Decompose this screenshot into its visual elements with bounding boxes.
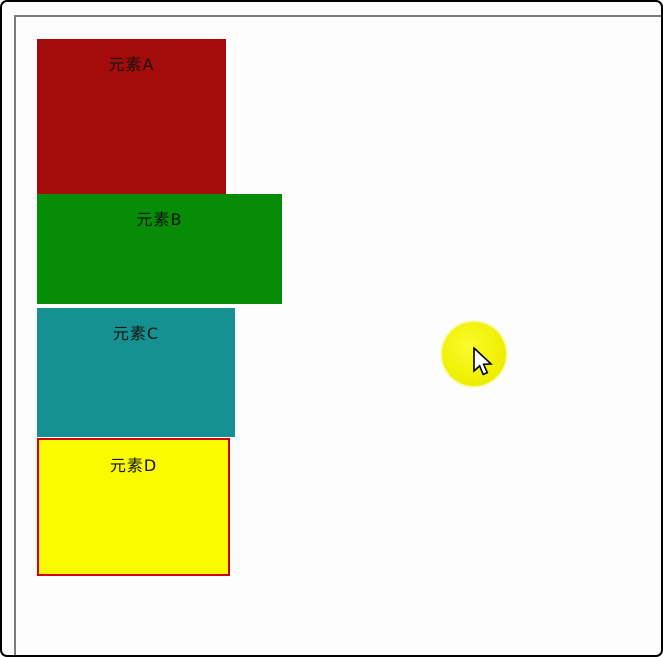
- yellow-ball[interactable]: [442, 322, 506, 386]
- element-c-box: 元素C: [37, 308, 235, 437]
- element-c-label: 元素C: [37, 308, 235, 344]
- element-a-label: 元素A: [37, 39, 226, 75]
- element-b-label: 元素B: [37, 194, 282, 230]
- element-d-label: 元素D: [39, 440, 228, 476]
- content-container: 元素A 元素B 元素C 元素D: [14, 15, 663, 657]
- element-d-box: 元素D: [37, 438, 230, 576]
- page-frame: 元素A 元素B 元素C 元素D: [0, 0, 663, 657]
- element-b-box: 元素B: [37, 194, 282, 304]
- element-a-box: 元素A: [37, 39, 226, 194]
